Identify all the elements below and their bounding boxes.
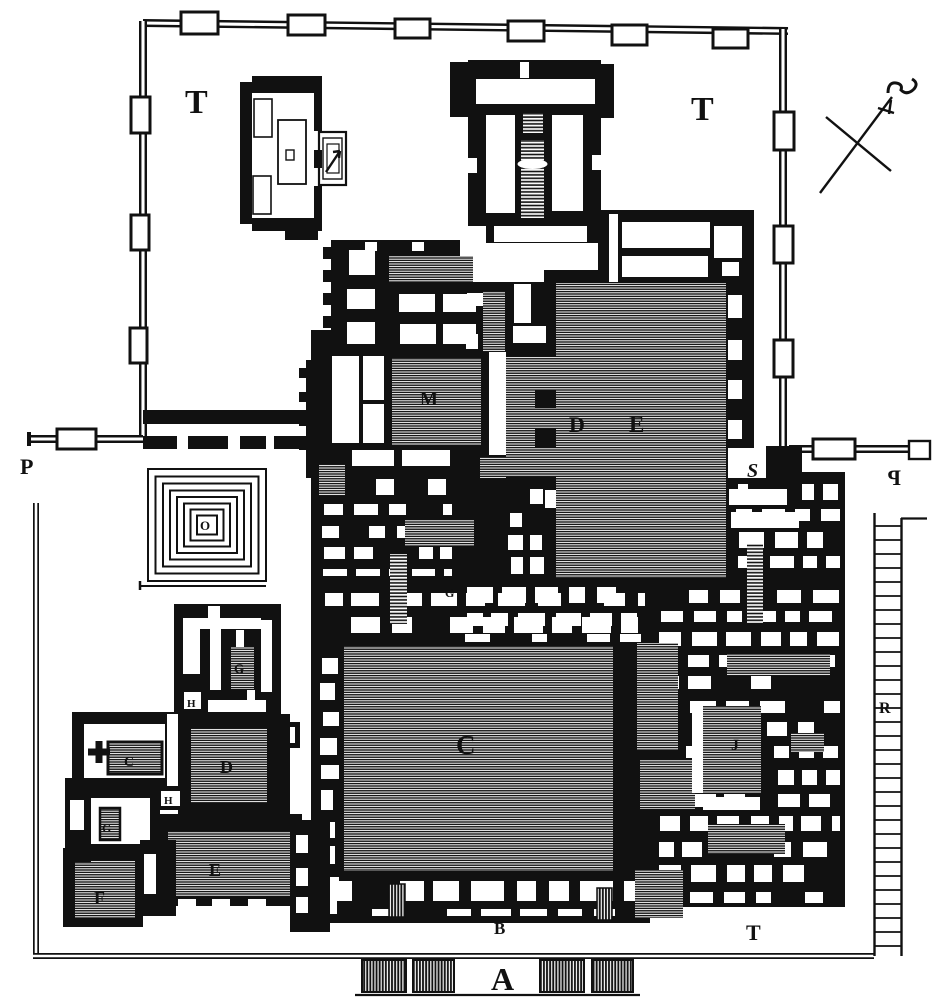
svg-text:M: M xyxy=(420,389,438,410)
svg-text:E: E xyxy=(629,412,644,437)
svg-text:S: S xyxy=(747,460,758,482)
svg-text:B: B xyxy=(494,919,505,938)
svg-text:A: A xyxy=(491,961,514,997)
svg-text:D: D xyxy=(220,757,233,777)
svg-text:F: F xyxy=(94,888,105,908)
svg-text:D: D xyxy=(569,412,585,437)
svg-text:G: G xyxy=(445,586,454,600)
svg-text:R: R xyxy=(879,700,891,717)
svg-text:T: T xyxy=(746,920,761,945)
svg-text:H: H xyxy=(164,795,173,807)
svg-text:O: O xyxy=(200,518,210,533)
svg-text:G: G xyxy=(102,821,111,835)
svg-text:C: C xyxy=(456,730,476,760)
svg-text:C: C xyxy=(124,755,134,770)
svg-text:E: E xyxy=(209,860,221,880)
svg-text:J: J xyxy=(731,737,739,754)
svg-text:G: G xyxy=(234,661,244,676)
svg-text:T: T xyxy=(185,84,208,121)
svg-text:P: P xyxy=(20,454,33,479)
svg-text:T: T xyxy=(691,91,714,128)
svg-text:H: H xyxy=(187,698,196,710)
svg-text:P: P xyxy=(888,465,901,490)
